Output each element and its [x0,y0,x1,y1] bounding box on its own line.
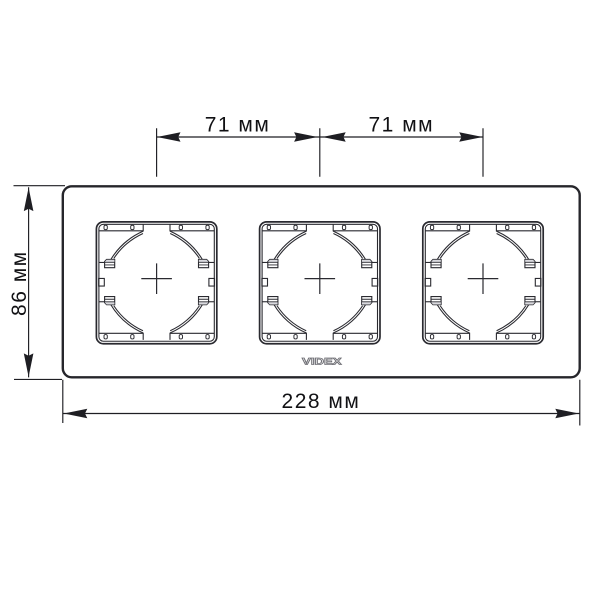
svg-text:86 мм: 86 мм [8,250,31,316]
svg-text:VIDEX: VIDEX [302,356,342,367]
svg-text:71 мм: 71 мм [205,114,271,137]
svg-text:71 мм: 71 мм [369,114,435,137]
svg-text:228 мм: 228 мм [282,390,361,413]
